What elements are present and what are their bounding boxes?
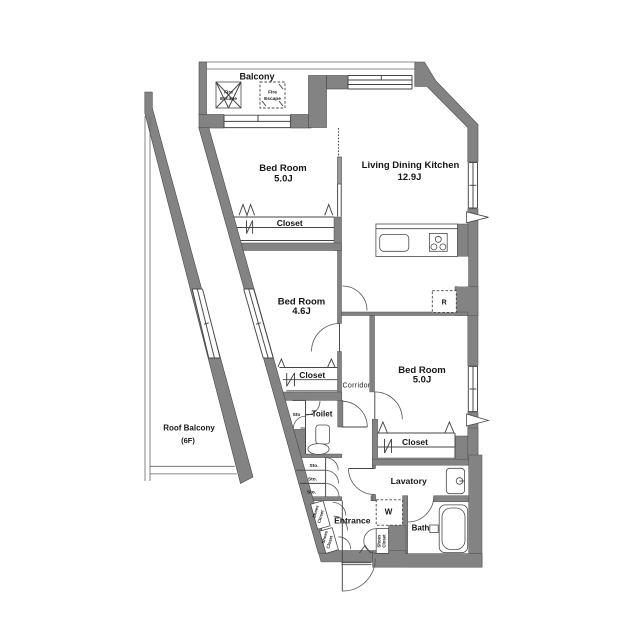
svg-text:Corridor: Corridor — [342, 383, 370, 390]
svg-text:Sto: Sto — [293, 412, 301, 418]
svg-text:Lavatory: Lavatory — [391, 476, 427, 486]
svg-text:Roof Balcony: Roof Balcony — [163, 424, 215, 433]
svg-text:Closet: Closet — [382, 534, 387, 548]
svg-text:Fire: Fire — [268, 90, 277, 96]
svg-text:Entrance: Entrance — [334, 516, 371, 526]
svg-text:5.0J: 5.0J — [274, 174, 293, 185]
svg-text:Closet: Closet — [277, 218, 303, 228]
svg-text:Escape: Escape — [264, 96, 281, 102]
svg-text:R: R — [442, 299, 447, 306]
svg-text:Sto.: Sto. — [309, 463, 318, 469]
svg-text:Fire: Fire — [224, 90, 233, 96]
svg-text:Bed Room: Bed Room — [259, 163, 307, 174]
svg-text:W: W — [385, 508, 393, 517]
svg-text:Bath: Bath — [412, 524, 430, 533]
svg-text:Toilet: Toilet — [312, 410, 333, 419]
svg-text:5.0J: 5.0J — [413, 374, 432, 385]
svg-text:4.6J: 4.6J — [292, 306, 311, 317]
svg-text:Closet: Closet — [402, 437, 428, 447]
svg-text:(6F): (6F) — [181, 436, 195, 445]
svg-text:Closet: Closet — [299, 370, 325, 380]
svg-text:12.9J: 12.9J — [398, 172, 422, 183]
svg-text:Sto.: Sto. — [307, 490, 316, 496]
svg-text:Escape: Escape — [220, 96, 237, 102]
svg-text:Sto.: Sto. — [308, 477, 317, 483]
svg-text:Living Dining Kitchen: Living Dining Kitchen — [362, 160, 460, 171]
svg-text:Balcony: Balcony — [239, 72, 274, 82]
